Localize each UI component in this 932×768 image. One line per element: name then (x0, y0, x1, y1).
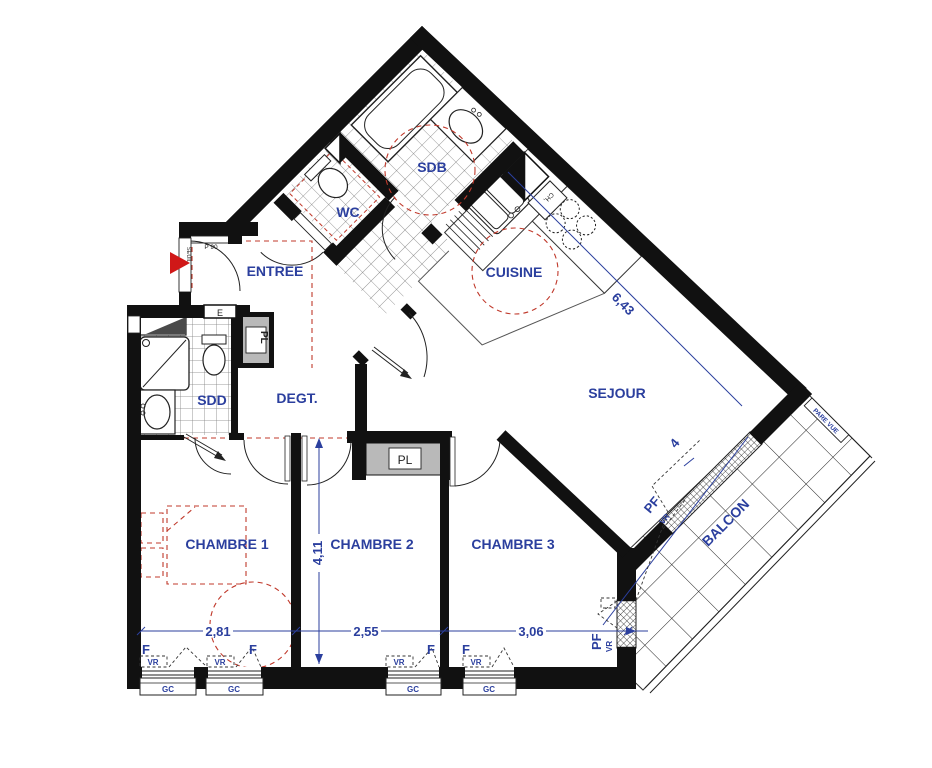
svg-text:CHAMBRE 1: CHAMBRE 1 (185, 536, 268, 552)
svg-text:2,81: 2,81 (205, 624, 230, 639)
svg-text:VR: VR (214, 658, 225, 667)
svg-text:SEJOUR: SEJOUR (588, 385, 646, 401)
svg-text:F: F (249, 642, 257, 657)
svg-text:CUISINE: CUISINE (486, 264, 543, 280)
svg-text:P 90: P 90 (204, 244, 218, 251)
svg-text:GC: GC (228, 685, 240, 694)
svg-text:SDD: SDD (197, 392, 227, 408)
svg-text:GC: GC (162, 685, 174, 694)
svg-text:SDB: SDB (417, 159, 447, 175)
svg-text:ENTREE: ENTREE (247, 263, 304, 279)
svg-text:F: F (427, 642, 435, 657)
svg-text:VR: VR (470, 658, 481, 667)
svg-text:F: F (462, 642, 470, 657)
svg-text:E: E (217, 308, 223, 318)
svg-text:VR: VR (393, 658, 404, 667)
svg-text:2,55: 2,55 (353, 624, 378, 639)
svg-text:GC: GC (483, 685, 495, 694)
svg-text:F: F (142, 642, 150, 657)
svg-text:PL: PL (398, 453, 413, 467)
svg-text:CHAMBRE 3: CHAMBRE 3 (471, 536, 554, 552)
svg-text:PL: PL (258, 331, 269, 344)
svg-text:WC: WC (336, 204, 359, 220)
svg-text:CHAMBRE 2: CHAMBRE 2 (330, 536, 413, 552)
svg-text:3,06: 3,06 (518, 624, 543, 639)
svg-text:PF: PF (589, 633, 604, 650)
svg-text:4,11: 4,11 (310, 541, 325, 566)
svg-text:DEGT.: DEGT. (276, 390, 317, 406)
svg-text:VR: VR (147, 658, 158, 667)
svg-text:GC: GC (407, 685, 419, 694)
svg-text:SEUIL: SEUIL (185, 247, 191, 263)
svg-text:VR: VR (605, 641, 614, 652)
